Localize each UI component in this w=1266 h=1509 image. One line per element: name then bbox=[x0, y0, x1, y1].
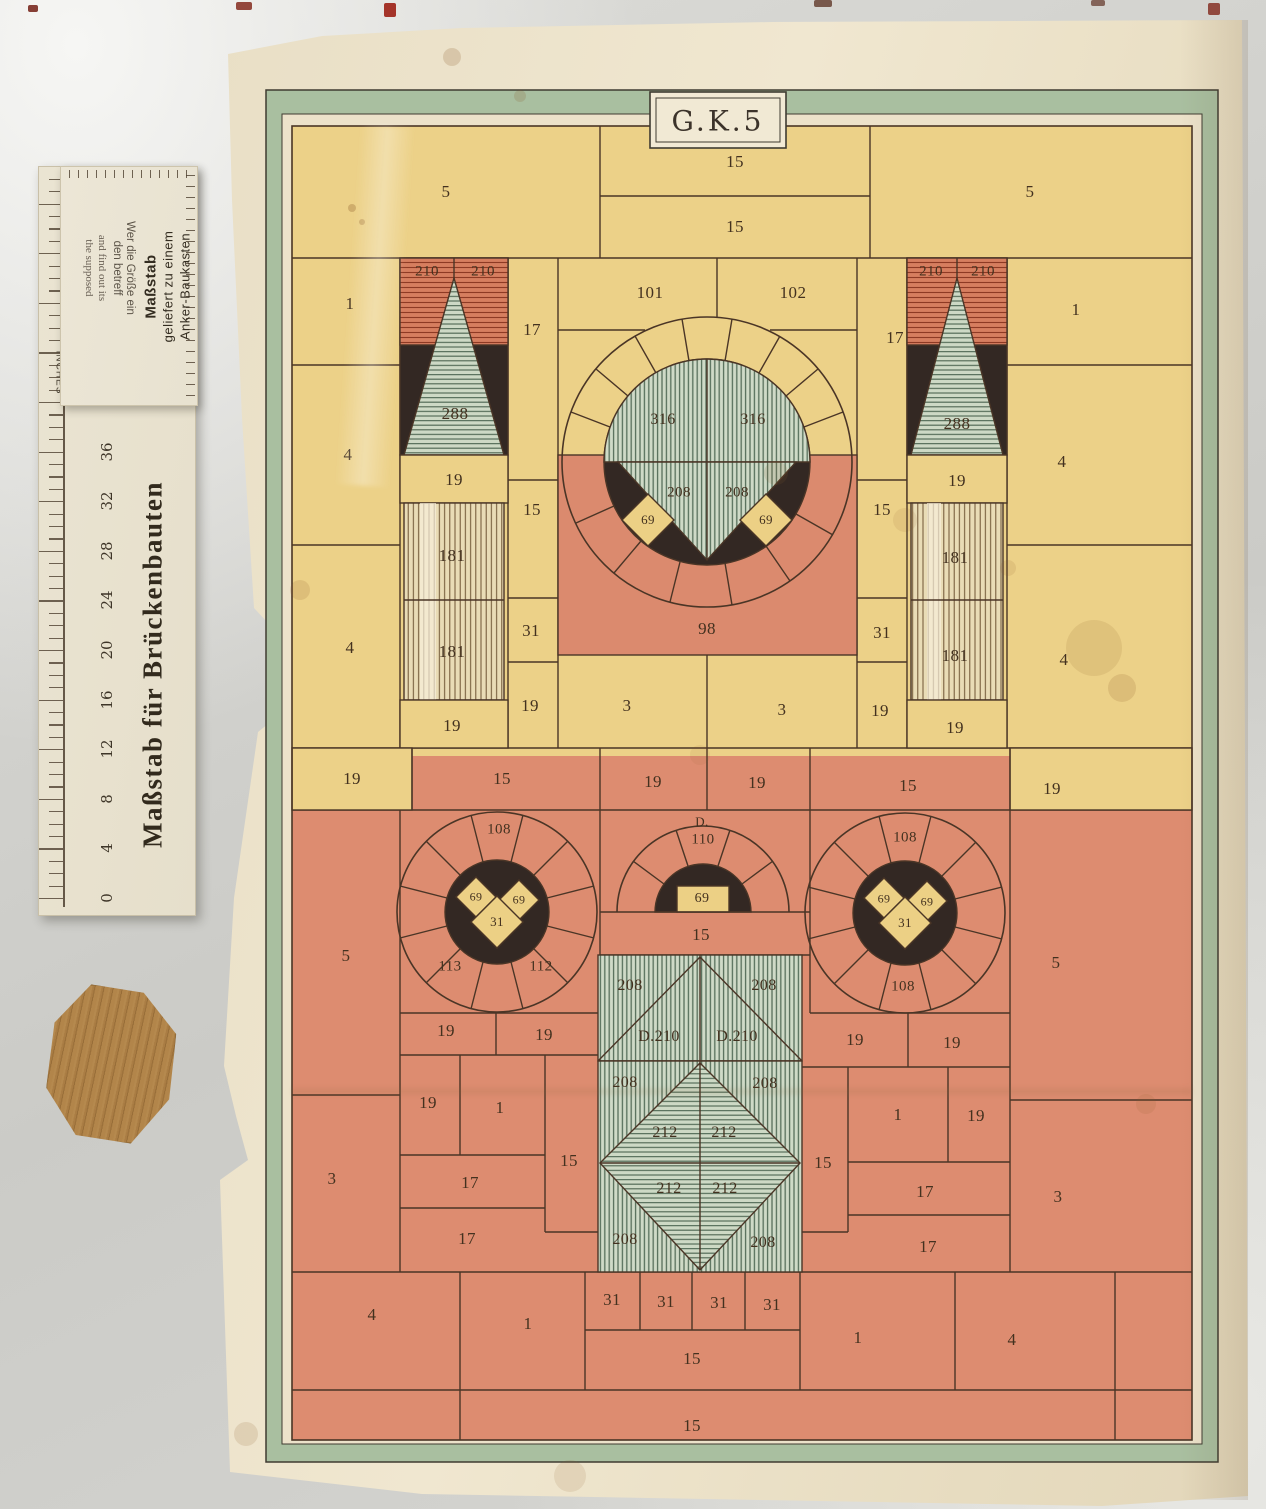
ruler-tick bbox=[49, 675, 63, 676]
ruler-tick bbox=[49, 625, 63, 626]
ruler-tick bbox=[49, 712, 63, 713]
ruler-tick bbox=[39, 501, 63, 502]
card-tick bbox=[78, 170, 79, 178]
photo-mark bbox=[1208, 3, 1220, 15]
photo-scene: 5151552102102102102882881919181181181181… bbox=[0, 0, 1266, 1509]
scale-number: 0 bbox=[98, 880, 116, 916]
photo-mark bbox=[236, 2, 252, 10]
ruler-tick bbox=[39, 898, 63, 899]
ruler-tick bbox=[39, 600, 63, 601]
scale-number: 36 bbox=[98, 434, 116, 470]
ruler-tick bbox=[39, 650, 63, 651]
ruler-tick bbox=[49, 576, 63, 577]
ruler-tick bbox=[49, 613, 63, 614]
ruler-tick bbox=[49, 538, 63, 539]
card-text-line: geliefert zu einem bbox=[160, 162, 177, 412]
ruler-tick bbox=[49, 724, 63, 725]
ruler-tick bbox=[49, 662, 63, 663]
ruler-title: Maßstab für Brückenbauten bbox=[138, 415, 169, 915]
ruler-tick bbox=[49, 762, 63, 763]
card-text-line: Anker-Baukasten bbox=[177, 162, 194, 412]
card-text-german: Wer die Größe einden betreff bbox=[110, 158, 136, 378]
scale-number: 12 bbox=[98, 731, 116, 767]
ruler-tick bbox=[49, 638, 63, 639]
plan-cells bbox=[292, 126, 1192, 1440]
photo-mark bbox=[814, 0, 832, 7]
ruler-tick bbox=[49, 439, 63, 440]
card-text-line: and find out its bbox=[95, 158, 108, 378]
ruler-card: and find out itsthe supposed Wer die Grö… bbox=[60, 166, 198, 406]
plan-title: G.K.5 bbox=[672, 105, 765, 138]
ruler-tick bbox=[39, 848, 63, 849]
ruler-tick bbox=[39, 700, 63, 701]
ruler-tick bbox=[49, 811, 63, 812]
ruler-tick bbox=[49, 588, 63, 589]
ruler-tick bbox=[49, 464, 63, 465]
ruler-tick bbox=[49, 774, 63, 775]
card-text-main: Maßstabgeliefert zu einemAnker-Baukasten bbox=[143, 162, 194, 412]
scale-number: 24 bbox=[98, 582, 116, 618]
scale-number: 20 bbox=[98, 632, 116, 668]
ruler-tick bbox=[49, 886, 63, 887]
ruler-tick bbox=[49, 687, 63, 688]
ruler-tick bbox=[39, 452, 63, 453]
card-text-line: Wer die Größe ein bbox=[123, 158, 136, 378]
ruler-tick bbox=[49, 873, 63, 874]
ruler-tick bbox=[49, 414, 63, 415]
scale-number: 8 bbox=[98, 781, 116, 817]
ruler-tick bbox=[49, 824, 63, 825]
ruler-tick bbox=[49, 563, 63, 564]
photo-mark bbox=[1091, 0, 1105, 6]
ruler-tick bbox=[49, 737, 63, 738]
ruler-tick bbox=[39, 749, 63, 750]
ruler-tick bbox=[49, 476, 63, 477]
card-text-line: the supposed bbox=[82, 158, 95, 378]
ruler-tick bbox=[49, 861, 63, 862]
ruler-tick bbox=[39, 551, 63, 552]
ruler-tick bbox=[49, 786, 63, 787]
scale-number: 16 bbox=[98, 682, 116, 718]
card-text-line: den betreff bbox=[110, 158, 123, 378]
ruler-tick bbox=[49, 514, 63, 515]
card-text-line: Maßstab bbox=[143, 162, 160, 412]
ruler-tick bbox=[49, 526, 63, 527]
card-tick bbox=[69, 170, 70, 178]
scale-number: 28 bbox=[98, 533, 116, 569]
ruler-tick bbox=[49, 427, 63, 428]
ruler-tick bbox=[49, 836, 63, 837]
ruler-tick bbox=[49, 489, 63, 490]
scale-number: 32 bbox=[98, 483, 116, 519]
photo-mark bbox=[28, 5, 38, 12]
card-text-english: and find out itsthe supposed bbox=[82, 158, 108, 378]
ruler-tick bbox=[39, 799, 63, 800]
scale-number: 4 bbox=[98, 830, 116, 866]
photo-mark bbox=[384, 3, 396, 17]
